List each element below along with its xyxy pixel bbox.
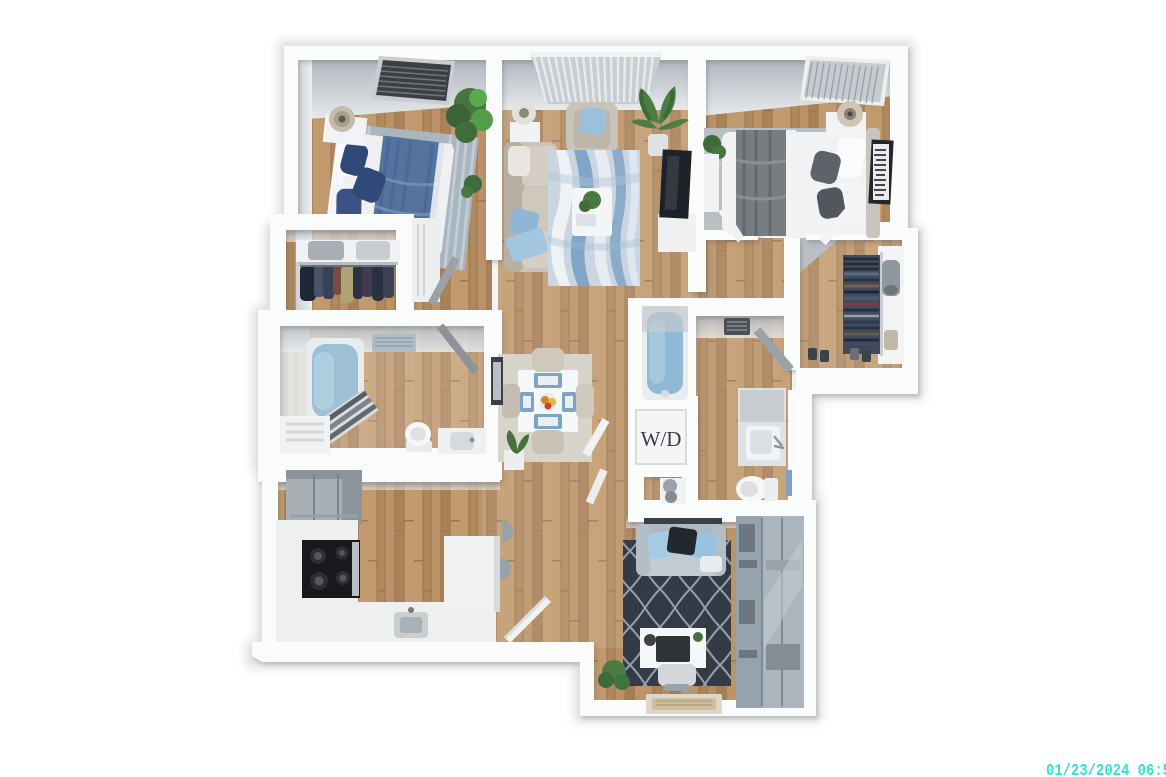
svg-text:01/23/2024 06:5: 01/23/2024 06:5 xyxy=(1046,761,1166,777)
svg-text:W/D: W/D xyxy=(641,427,682,451)
